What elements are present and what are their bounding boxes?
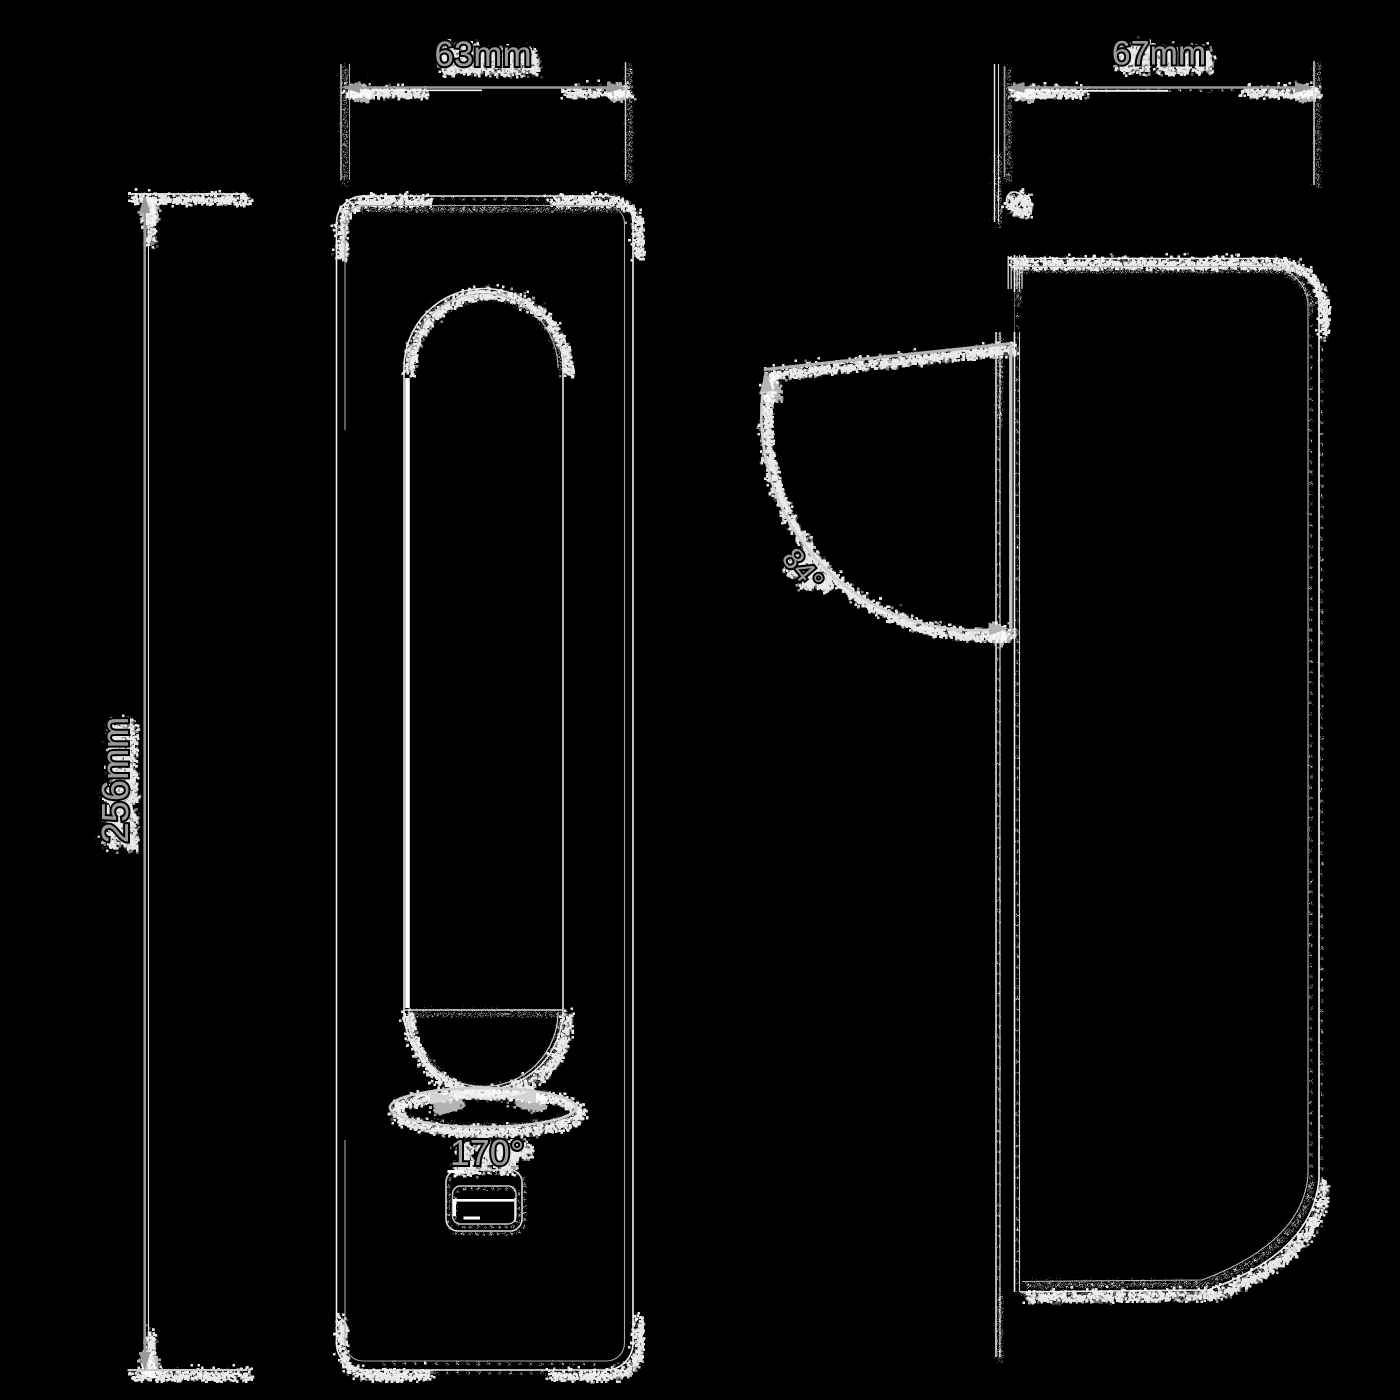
svg-text:170°: 170°	[450, 1132, 524, 1173]
svg-text:67mm: 67mm	[1112, 35, 1206, 73]
svg-text:256mm: 256mm	[95, 717, 137, 844]
svg-text:63mm: 63mm	[434, 35, 531, 74]
